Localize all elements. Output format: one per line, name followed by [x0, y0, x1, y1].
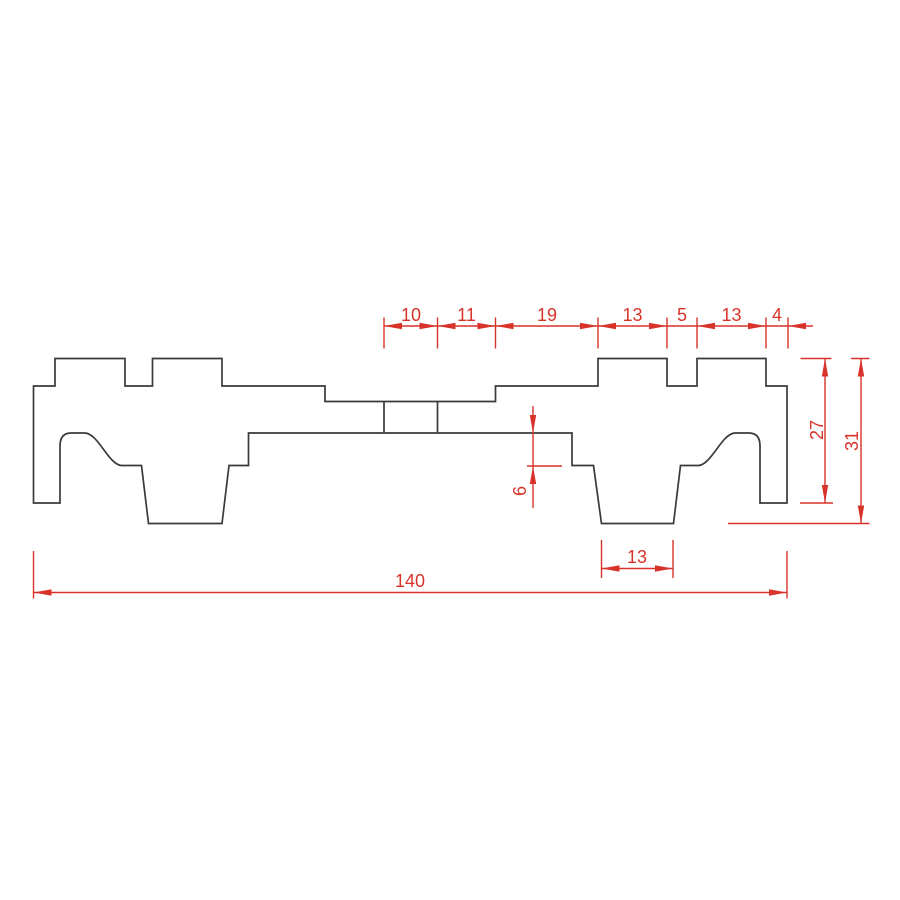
arrowhead: [438, 323, 456, 329]
technical-drawing: 10 11 19 13 5 13 4 6 27: [0, 0, 900, 900]
top-dim-label-3: 19: [537, 305, 557, 325]
arrowhead: [697, 323, 715, 329]
arrowhead: [822, 485, 828, 503]
top-dim-label-7: 4: [772, 305, 782, 325]
top-dim-label-2: 11: [457, 305, 476, 325]
top-dim-label-1: 10: [401, 305, 421, 325]
arrowhead: [598, 323, 616, 329]
step-depth-label: 6: [510, 486, 530, 496]
top-dimension-chain: 10 11 19 13 5 13 4: [384, 305, 813, 349]
top-dim-label-6: 13: [721, 305, 741, 325]
arrowhead: [384, 323, 402, 329]
arrowhead: [580, 323, 598, 329]
arrowhead: [655, 565, 673, 571]
arrowhead: [649, 323, 667, 329]
arrowhead: [530, 466, 536, 484]
total-width-dimension: 140: [34, 551, 788, 599]
total-width-label: 140: [395, 571, 425, 591]
arrowhead: [602, 565, 620, 571]
foot-width-label: 13: [627, 547, 647, 567]
top-dim-label-5: 5: [677, 305, 687, 325]
arrowhead: [530, 415, 536, 433]
arrowhead: [748, 323, 766, 329]
height-partial-label: 27: [807, 420, 827, 440]
arrowhead: [420, 323, 438, 329]
step-depth-dimension: 6: [510, 406, 562, 508]
height-partial-dimension: 27: [800, 359, 833, 504]
profile-geometry: [34, 359, 788, 524]
arrowhead: [34, 589, 52, 595]
arrowhead: [769, 589, 787, 595]
height-total-dimension: 31: [728, 359, 870, 524]
top-dim-label-4: 13: [622, 305, 642, 325]
arrowhead: [858, 359, 864, 377]
height-total-label: 31: [842, 431, 862, 451]
drawing-canvas: 10 11 19 13 5 13 4 6 27: [0, 0, 900, 900]
foot-width-dimension: 13: [602, 540, 674, 578]
arrowhead: [478, 323, 496, 329]
arrowhead: [858, 506, 864, 524]
arrowhead: [496, 323, 514, 329]
arrowhead: [822, 359, 828, 377]
arrowhead: [788, 323, 806, 329]
profile-outline: [34, 359, 788, 524]
